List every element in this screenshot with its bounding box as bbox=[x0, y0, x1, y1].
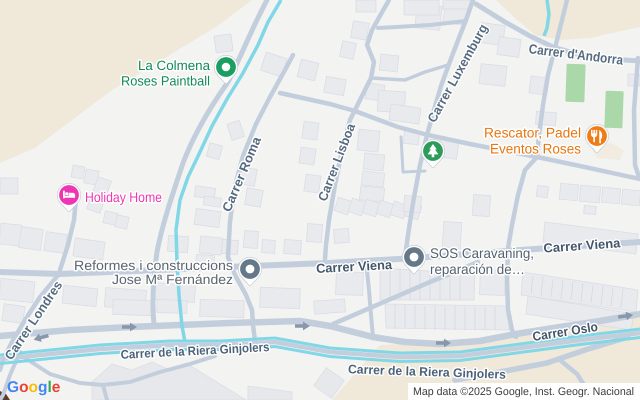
svg-text:Map data ©2025 Google, Inst. G: Map data ©2025 Google, Inst. Geogr. Naci… bbox=[413, 386, 634, 398]
svg-text:Eventos Roses: Eventos Roses bbox=[490, 141, 581, 157]
svg-text:SOS Caravaning,: SOS Caravaning, bbox=[430, 245, 534, 261]
svg-text:Holiday Home: Holiday Home bbox=[85, 189, 162, 205]
svg-text:Google: Google bbox=[7, 379, 61, 396]
svg-text:reparación de…: reparación de… bbox=[430, 261, 525, 277]
svg-text:Reformes i construccions: Reformes i construccions bbox=[74, 258, 233, 273]
svg-text:Roses Paintball: Roses Paintball bbox=[121, 74, 210, 89]
svg-text:Jose Mª Fernández: Jose Mª Fernández bbox=[112, 272, 233, 287]
svg-text:Rescator, Padel: Rescator, Padel bbox=[484, 125, 581, 141]
svg-text:La Colmena: La Colmena bbox=[138, 58, 210, 73]
